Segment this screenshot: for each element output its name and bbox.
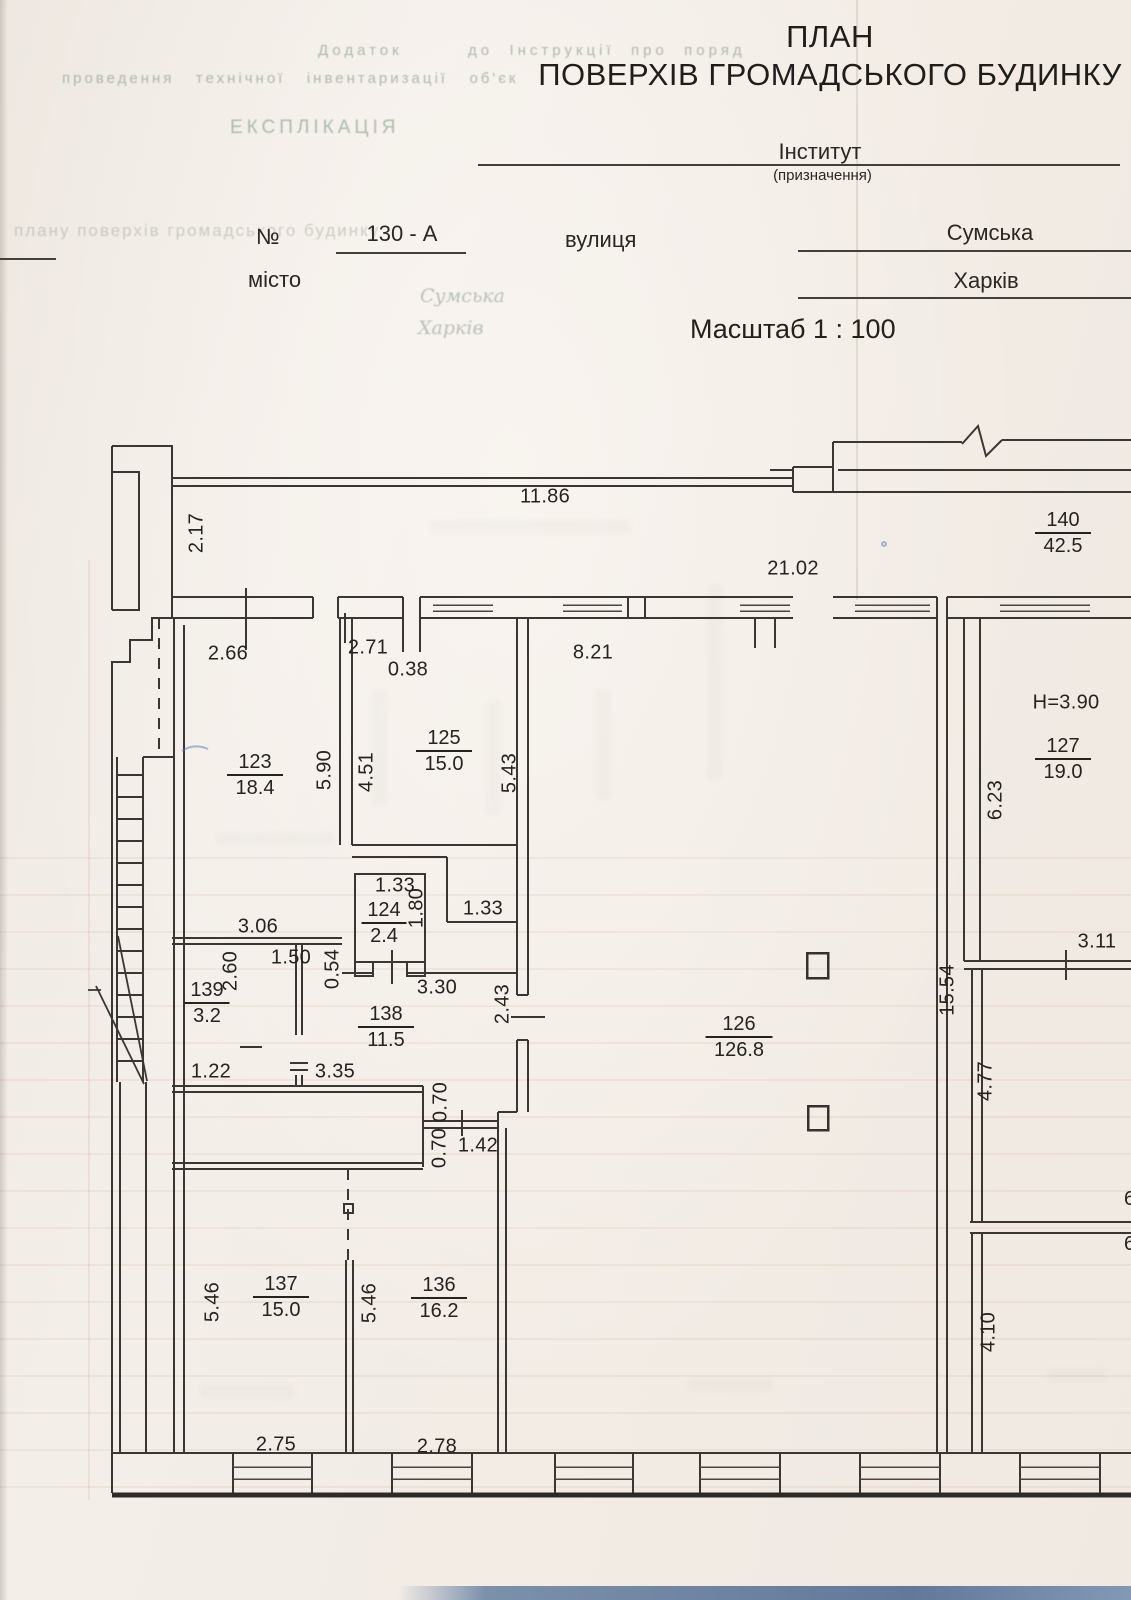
dimension-label: 1.33 — [463, 898, 503, 921]
dimension-label: 2.71 — [348, 637, 388, 660]
dimension-label: 4.51 — [356, 752, 379, 792]
floorplan-drawing — [0, 0, 1131, 1600]
dimension-label: 1.22 — [191, 1061, 231, 1084]
dimension-label: 5.46 — [202, 1282, 225, 1322]
clipped-edge-label: 6 — [1124, 1233, 1131, 1256]
dimension-label: 8.21 — [573, 642, 613, 665]
stair-tower-walls — [112, 446, 184, 1493]
dimension-label: 0.70 — [429, 1128, 452, 1168]
room-label-138: 13811.5 — [358, 1004, 414, 1050]
corridor-bottom-wall — [172, 597, 1131, 652]
dimension-label: 4.77 — [975, 1061, 998, 1101]
dimension-label: 0.38 — [388, 659, 428, 682]
dimension-label: 15.54 — [937, 964, 960, 1016]
room-label-140: 14042.5 — [1035, 510, 1091, 556]
room-label-136: 13616.2 — [411, 1275, 467, 1321]
room-label-126: 126126.8 — [706, 1014, 773, 1060]
dimension-label: 2.75 — [256, 1434, 296, 1457]
clipped-edge-label: 6 — [1124, 1188, 1131, 1211]
dimension-label: 2.43 — [492, 984, 515, 1024]
room-label-127: 12719.0 — [1035, 736, 1091, 782]
scanned-floor-plan-page: Додаток до Інструкції про поряд проведен… — [0, 0, 1131, 1600]
corridor-top-wall — [172, 440, 1131, 492]
dimension-label: 5.46 — [359, 1283, 382, 1323]
dimension-label: 2.78 — [417, 1436, 457, 1459]
dimension-label: 1.80 — [406, 888, 429, 928]
dimension-label: 2.66 — [208, 643, 248, 666]
dimension-label: 3.30 — [417, 977, 457, 1000]
dimension-label: 5.90 — [314, 750, 337, 790]
dimension-label: 6.23 — [985, 780, 1008, 820]
dimension-ticks — [240, 588, 1066, 1136]
dimension-label: 3.11 — [1078, 931, 1117, 954]
dimension-label: 3.06 — [238, 916, 278, 939]
dimension-label: 3.35 — [315, 1061, 355, 1084]
stair-treads — [117, 775, 143, 1061]
room-label-123: 12318.4 — [227, 752, 283, 798]
scanner-edge-strip — [398, 1586, 1131, 1600]
room-label-137: 13715.0 — [253, 1274, 309, 1320]
dimension-label: 1.42 — [458, 1135, 498, 1158]
dimension-label: H=3.90 — [1033, 692, 1100, 715]
dimension-label: 21.02 — [767, 558, 819, 581]
dimension-label: 0.70 — [430, 1082, 453, 1122]
dimension-label: 11.86 — [520, 486, 570, 509]
bottom-window-sills — [233, 1467, 1100, 1479]
room-label-124: 1242.4 — [362, 900, 407, 946]
dimension-label: 1.50 — [271, 947, 311, 970]
dimension-label: 2.60 — [220, 951, 243, 991]
dimension-label: 2.17 — [186, 513, 209, 553]
structural-columns — [807, 953, 828, 1130]
room-label-125: 12515.0 — [416, 728, 472, 774]
wall-break-symbol — [962, 426, 1002, 456]
dimension-label: 4.10 — [978, 1312, 1001, 1352]
corridor-window-sills — [433, 605, 1090, 611]
bottom-wall — [112, 1453, 1131, 1493]
dimension-label: 5.43 — [499, 753, 522, 793]
dimension-label: 0.54 — [322, 949, 345, 989]
